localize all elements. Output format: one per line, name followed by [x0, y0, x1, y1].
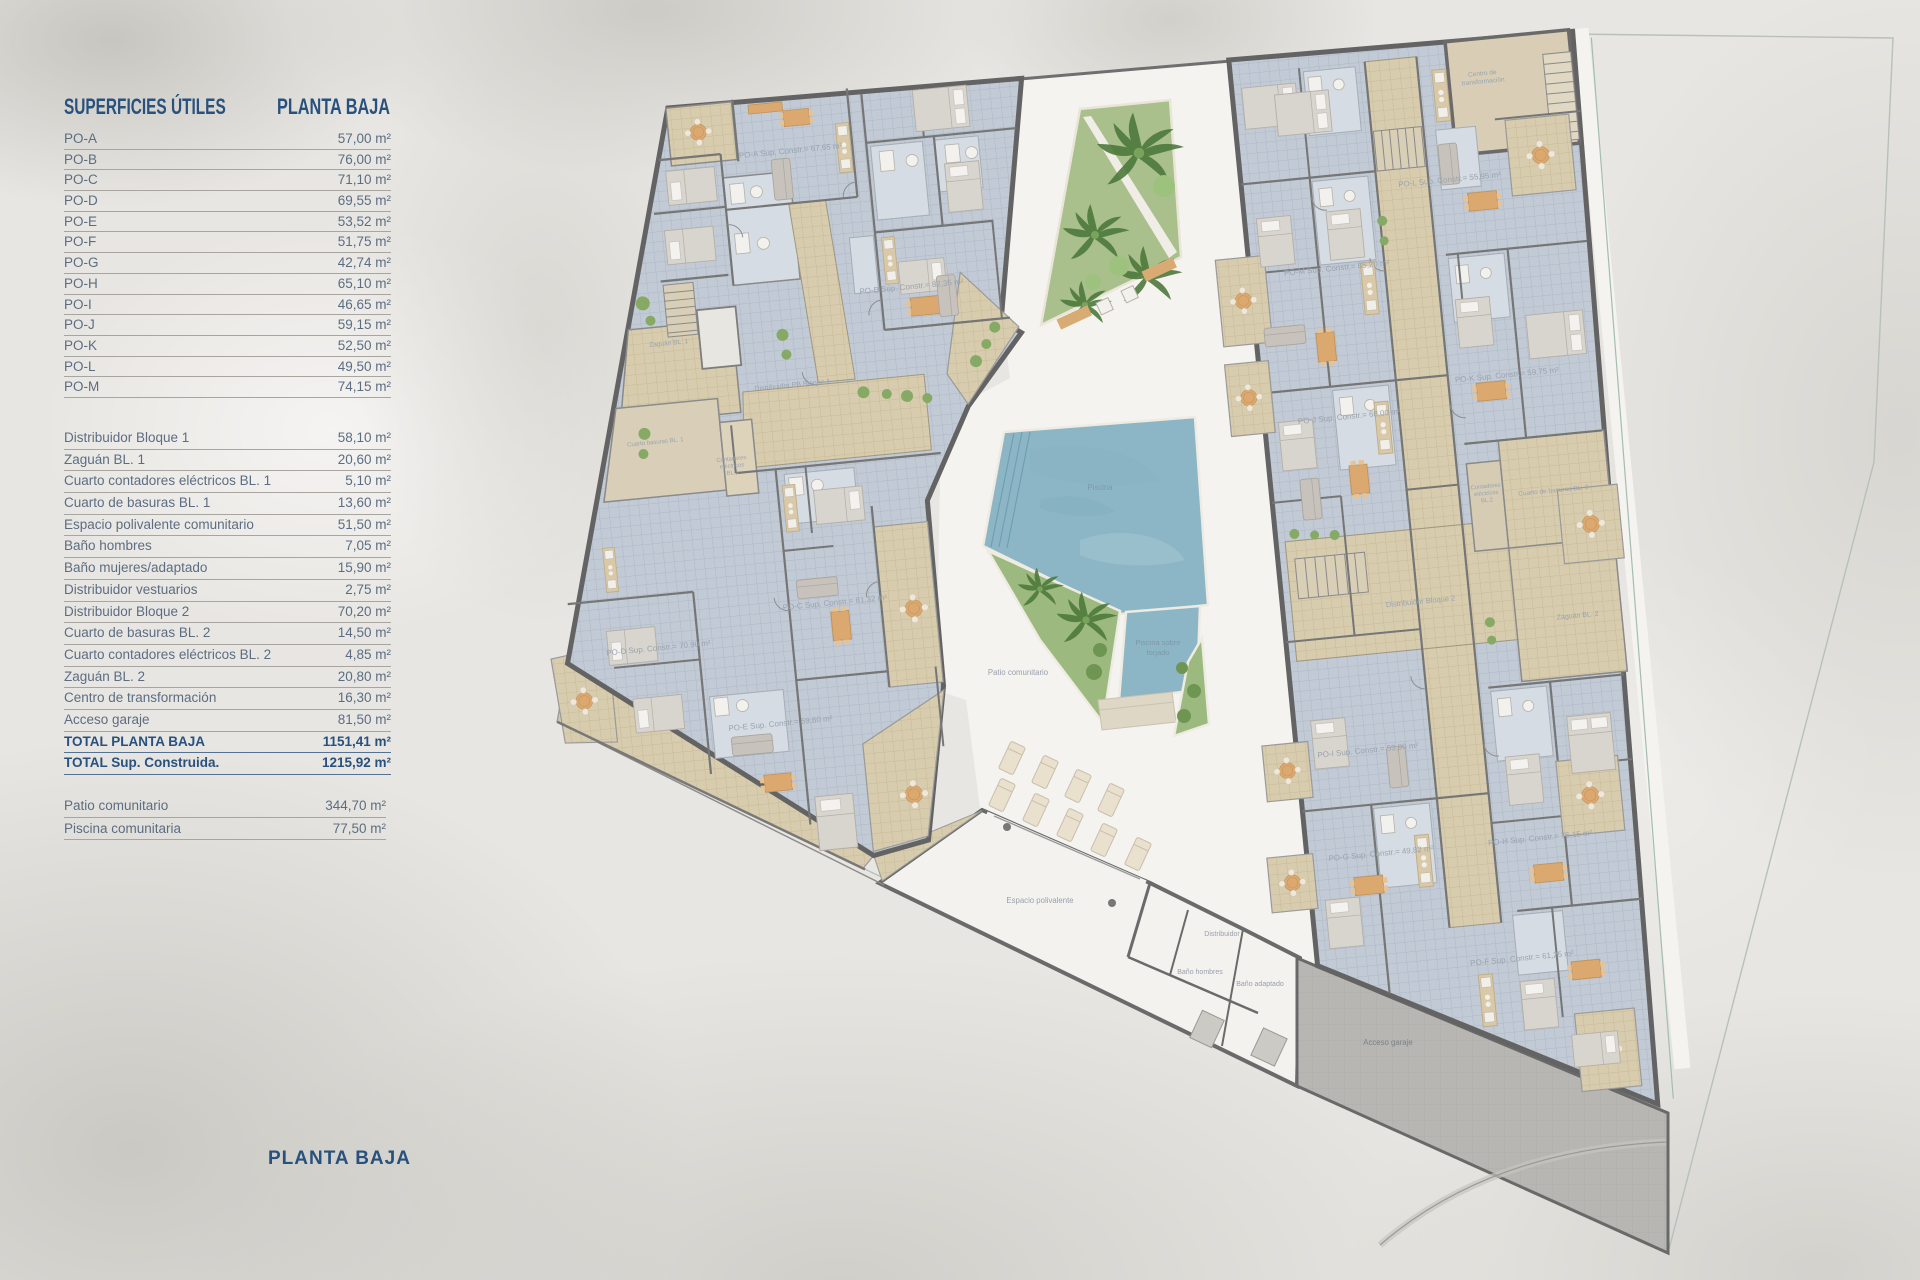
svg-text:Piscina: Piscina — [1087, 483, 1113, 492]
svg-text:Piscina sobre: Piscina sobre — [1135, 638, 1180, 647]
svg-text:Acceso garaje: Acceso garaje — [1363, 1038, 1412, 1047]
svg-text:Baño adaptado: Baño adaptado — [1236, 981, 1284, 988]
svg-text:forjado: forjado — [1147, 648, 1170, 657]
svg-text:Espacio polivalente: Espacio polivalente — [1006, 896, 1073, 905]
svg-text:BL.2: BL.2 — [1481, 497, 1493, 504]
svg-text:Distribuidor: Distribuidor — [1204, 931, 1240, 938]
svg-text:Patio comunitario: Patio comunitario — [988, 668, 1049, 677]
svg-text:Baño hombres: Baño hombres — [1177, 969, 1223, 976]
svg-text:BL.1: BL.1 — [727, 470, 739, 477]
